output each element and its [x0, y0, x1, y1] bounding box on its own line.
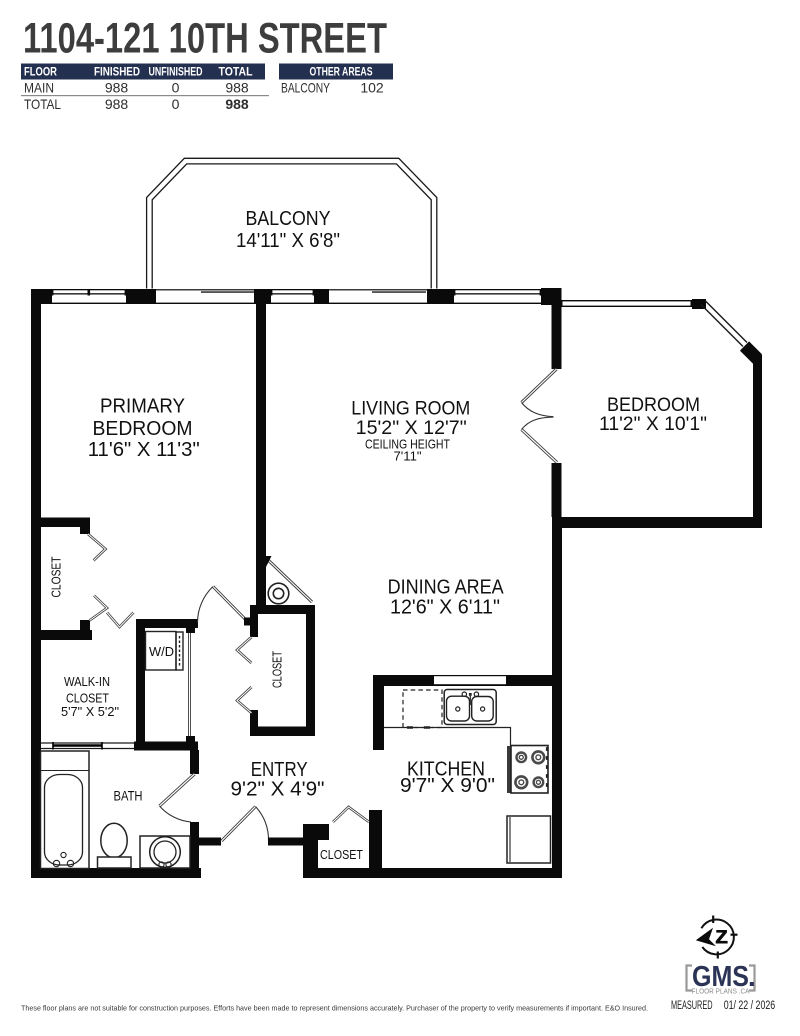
svg-text:988: 988 [105, 96, 129, 112]
svg-text:14'11" X 6'8": 14'11" X 6'8" [236, 229, 340, 252]
svg-text:9'7" X 9'0": 9'7" X 9'0" [400, 774, 495, 797]
svg-text:9'2" X 4'9": 9'2" X 4'9" [231, 778, 325, 801]
svg-text:OTHER AREAS: OTHER AREAS [310, 67, 373, 79]
svg-text:These floor plans are not suit: These floor plans are not suitable for c… [21, 1004, 648, 1013]
svg-text:WALK-IN: WALK-IN [64, 674, 110, 689]
svg-text:z: z [715, 920, 729, 950]
svg-text:UNFINISHED: UNFINISHED [149, 67, 203, 79]
svg-text:MAIN: MAIN [24, 80, 54, 96]
svg-text:01/ 22 / 2026: 01/ 22 / 2026 [724, 1000, 776, 1012]
svg-text:BALCONY: BALCONY [246, 207, 331, 230]
svg-text:7'11": 7'11" [394, 449, 422, 463]
svg-text:W/D: W/D [149, 645, 174, 659]
svg-text:PRIMARY: PRIMARY [100, 395, 185, 418]
svg-text:988: 988 [225, 80, 249, 96]
svg-text:TOTAL: TOTAL [219, 67, 253, 79]
svg-text:LIVING ROOM: LIVING ROOM [351, 399, 470, 420]
svg-text:CLOSET: CLOSET [49, 556, 64, 597]
svg-text:CLOSET: CLOSET [320, 847, 363, 862]
svg-text:988: 988 [105, 80, 129, 96]
svg-text:BEDROOM: BEDROOM [93, 417, 193, 440]
svg-text:988: 988 [225, 96, 249, 112]
svg-text:TOTAL: TOTAL [24, 96, 61, 112]
svg-text:CLOSET: CLOSET [270, 651, 285, 688]
svg-text:MEASURED: MEASURED [671, 1000, 713, 1012]
svg-text:FLOOR PLANS .CA: FLOOR PLANS .CA [692, 987, 750, 996]
svg-text:FINISHED: FINISHED [94, 67, 140, 79]
svg-text:12'6" X 6'11": 12'6" X 6'11" [390, 596, 500, 619]
svg-text:0: 0 [172, 80, 180, 96]
svg-text:BATH: BATH [114, 788, 143, 803]
svg-text:11'6" X 11'3": 11'6" X 11'3" [88, 438, 200, 461]
svg-text:0: 0 [172, 96, 180, 112]
svg-text:5'7" X 5'2": 5'7" X 5'2" [61, 704, 119, 719]
svg-text:11'2" X 10'1": 11'2" X 10'1" [599, 414, 707, 435]
svg-text:1104-121 10TH STREET: 1104-121 10TH STREET [23, 15, 387, 63]
svg-text:102: 102 [360, 80, 384, 96]
svg-text:BEDROOM: BEDROOM [607, 395, 700, 416]
svg-text:BALCONY: BALCONY [281, 80, 330, 96]
svg-text:FLOOR: FLOOR [24, 67, 58, 79]
